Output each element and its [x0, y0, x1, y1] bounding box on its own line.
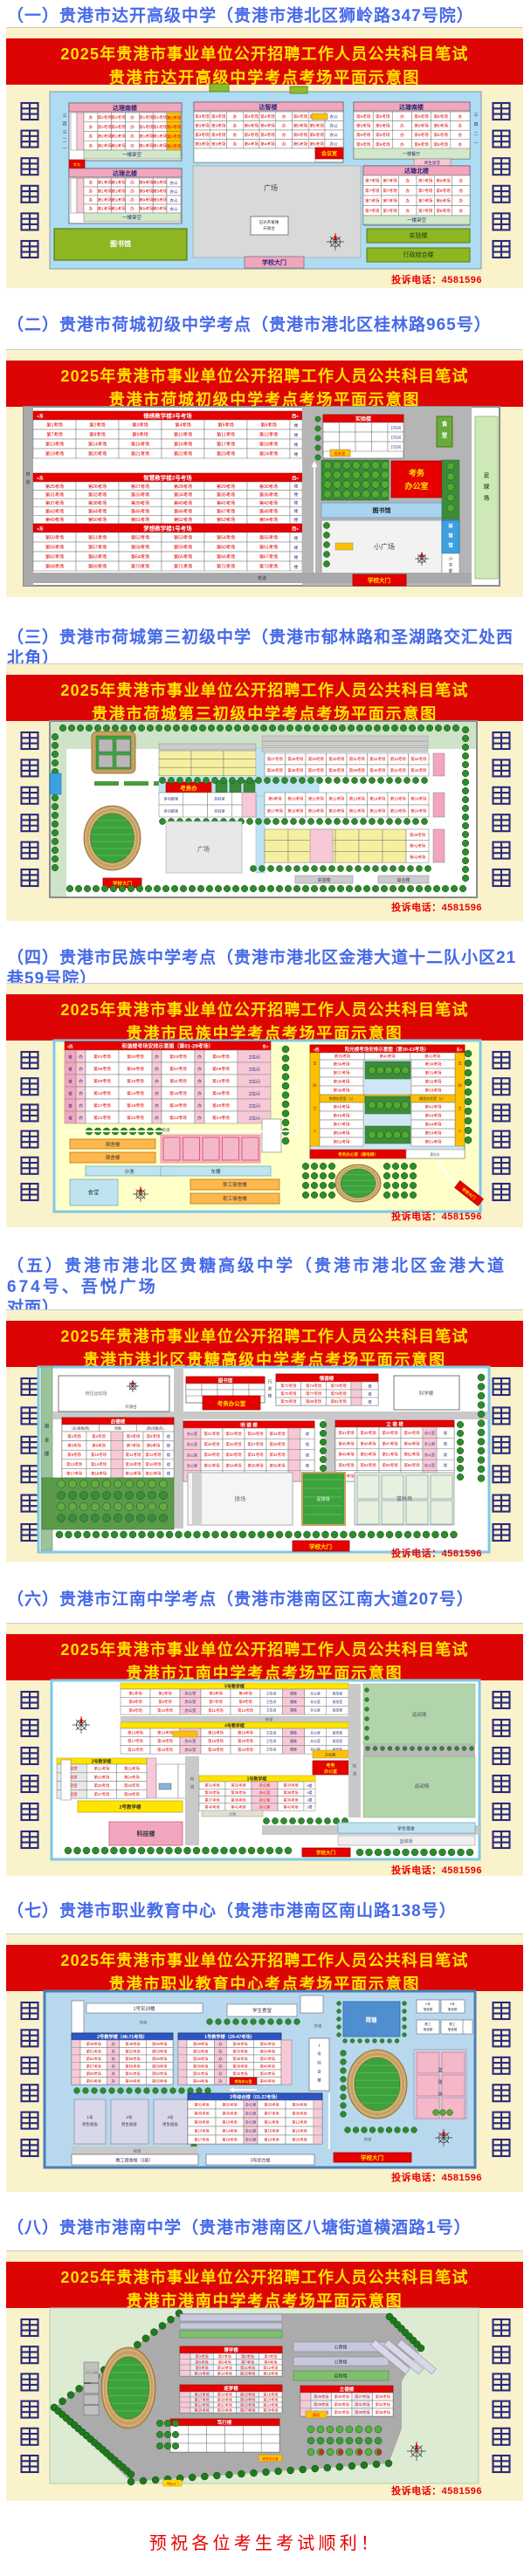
- svg-text:第7考场: 第7考场: [383, 177, 397, 183]
- svg-text:办公: 办公: [329, 141, 338, 148]
- svg-text:校道: 校道: [140, 2019, 148, 2025]
- svg-text:第5考场: 第5考场: [376, 132, 390, 138]
- svg-text:第13考场: 第13考场: [128, 1729, 143, 1735]
- svg-text:第50考场: 第50考场: [45, 533, 64, 540]
- svg-text:第36考场: 第36考场: [283, 1789, 298, 1796]
- svg-text:第1考场: 第1考场: [153, 114, 168, 120]
- svg-text:3号综合楼: 3号综合楼: [251, 2157, 271, 2163]
- svg-text:第5考场: 第5考场: [153, 206, 168, 212]
- svg-text:第4考场: 第4考场: [260, 141, 275, 147]
- svg-text:第06考场: 第06考场: [127, 1066, 144, 1072]
- svg-text:办公: 办公: [329, 123, 338, 129]
- svg-text:第19考场: 第19考场: [208, 1738, 224, 1744]
- svg-text:第15考场: 第15考场: [131, 440, 149, 447]
- svg-text:办: 办: [233, 141, 238, 147]
- svg-text:第54考场: 第54考场: [360, 1462, 376, 1468]
- svg-text:第1考场: 第1考场: [128, 1690, 142, 1696]
- svg-text:第28考场: 第28考场: [376, 2394, 390, 2400]
- svg-text:第28考场: 第28考场: [269, 1441, 286, 1447]
- svg-text:第1考场: 第1考场: [153, 124, 168, 130]
- svg-text:办: 办: [130, 180, 134, 186]
- svg-text:第51考场: 第51考场: [131, 516, 149, 523]
- svg-text:第40考场: 第40考场: [410, 832, 426, 838]
- svg-text:第6考场: 第6考场: [434, 123, 449, 129]
- svg-text:第43考场: 第43考场: [45, 508, 64, 515]
- svg-text:办公室: 办公室: [424, 1462, 435, 1467]
- svg-text:办: 办: [89, 206, 93, 212]
- svg-text:第21考场: 第21考场: [195, 2402, 210, 2408]
- svg-text:宿: 宿: [45, 1423, 50, 1430]
- svg-text:阅览室: 阅览室: [333, 1708, 343, 1713]
- svg-text:考务: 考务: [409, 468, 425, 477]
- svg-text:办公室: 办公室: [310, 1700, 321, 1704]
- svg-text:第4考场: 第4考场: [244, 132, 259, 138]
- svg-text:实验楼: 实验楼: [355, 416, 371, 422]
- svg-text:办公室: 办公室: [187, 1452, 197, 1457]
- svg-text:一楼餐厅: 一楼餐厅: [403, 151, 420, 157]
- svg-text:篮球场: 篮球场: [399, 1838, 412, 1844]
- svg-text:楼: 楼: [294, 451, 299, 457]
- svg-text:学校大门: 学校大门: [166, 2481, 179, 2485]
- svg-text:办: 办: [197, 1090, 202, 1096]
- svg-text:第10考场: 第10考场: [91, 1452, 107, 1458]
- svg-text:第9考场: 第9考场: [268, 796, 282, 802]
- svg-text:第36考场: 第36考场: [259, 491, 278, 498]
- svg-text:(东)南面(西): (东)南面(西): [72, 1425, 90, 1430]
- svg-text:办公室: 办公室: [187, 1463, 197, 1468]
- svg-text:第40考场: 第40考场: [369, 767, 386, 773]
- svg-text:第20考场: 第20考场: [145, 1470, 162, 1476]
- svg-text:第14考场: 第14考场: [127, 1090, 144, 1096]
- svg-text:办公室: 办公室: [424, 1430, 435, 1435]
- svg-text:办公: 办公: [169, 206, 178, 212]
- svg-text:办: 办: [112, 2041, 115, 2047]
- svg-text:男生宿舍: 男生宿舍: [82, 2121, 98, 2127]
- svg-text:球: 球: [438, 2079, 442, 2085]
- svg-text:第3考场: 第3考场: [195, 141, 210, 147]
- svg-text:楼: 楼: [167, 1470, 170, 1476]
- svg-text:第35考场: 第35考场: [334, 1054, 351, 1060]
- svg-text:三: 三: [473, 113, 478, 118]
- svg-text:第33考场: 第33考场: [425, 1088, 442, 1094]
- svg-text:第5考场: 第5考场: [153, 197, 168, 203]
- svg-text:第3考场: 第3考场: [195, 113, 210, 120]
- svg-text:卫生间: 卫生间: [266, 1700, 277, 1704]
- svg-text:第3考场: 第3考场: [211, 113, 226, 120]
- svg-text:第5考场: 第5考场: [293, 113, 308, 120]
- svg-text:第10考场: 第10考场: [217, 2365, 232, 2371]
- svg-text:第54考场: 第54考场: [86, 2056, 101, 2062]
- svg-text:第2考场: 第2考场: [98, 124, 113, 130]
- svg-text:第17考场: 第17考场: [267, 808, 284, 814]
- svg-text:舍: 舍: [45, 1437, 50, 1444]
- svg-text:第2考场: 第2考场: [111, 114, 126, 120]
- svg-text:第70考场: 第70考场: [131, 562, 149, 569]
- svg-text:第35考场: 第35考场: [193, 2056, 208, 2062]
- svg-text:图书馆: 图书馆: [218, 1377, 233, 1384]
- svg-text:卫生间: 卫生间: [248, 1067, 259, 1073]
- svg-text:第21考场: 第21考场: [349, 808, 366, 814]
- svg-text:学校大门: 学校大门: [361, 2154, 384, 2161]
- svg-text:第7考场: 第7考场: [365, 208, 380, 214]
- svg-text:第18考场: 第18考场: [259, 440, 278, 447]
- svg-text:卫生间: 卫生间: [266, 1730, 277, 1735]
- svg-text:第38考场: 第38考场: [231, 1796, 245, 1803]
- svg-text:办: 办: [233, 122, 238, 128]
- svg-text:第02考场: 第02考场: [127, 1054, 144, 1060]
- svg-text:第22考场: 第22考场: [225, 1431, 242, 1437]
- svg-text:运动场: 运动场: [415, 1783, 430, 1789]
- svg-text:行: 行: [268, 1379, 272, 1385]
- svg-text:办: 办: [197, 1066, 202, 1072]
- svg-text:第13考场: 第13考场: [93, 1090, 111, 1096]
- svg-text:小: 小: [449, 556, 453, 562]
- svg-text:第38考场: 第38考场: [193, 2063, 208, 2069]
- svg-text:第13考场: 第13考场: [195, 2392, 210, 2398]
- svg-text:第4考场: 第4考场: [175, 421, 190, 428]
- svg-text:第04考场: 第04考场: [292, 2102, 307, 2108]
- svg-text:多功能室: 多功能室: [163, 796, 178, 802]
- svg-text:第53考场: 第53考场: [425, 1130, 442, 1137]
- svg-text:馆: 馆: [448, 542, 453, 549]
- svg-text:第33考场: 第33考场: [131, 491, 149, 498]
- svg-text:第22考场: 第22考场: [217, 2402, 232, 2408]
- svg-text:第4考场: 第4考场: [260, 113, 275, 120]
- svg-text:第3考场: 第3考场: [209, 1690, 223, 1696]
- svg-text:第14考场: 第14考场: [91, 1461, 107, 1467]
- svg-text:一: 一: [62, 147, 66, 152]
- svg-text:阳光楼考场安排示意图（第30-53考场）: 阳光楼考场安排示意图（第30-53考场）: [345, 1046, 430, 1053]
- svg-text:第23考场: 第23考场: [208, 1747, 224, 1753]
- svg-text:第10考场: 第10考场: [287, 796, 304, 802]
- svg-text:3楼: 3楼: [307, 1797, 313, 1802]
- svg-text:第42考场: 第42考场: [410, 854, 426, 860]
- svg-text:第1考场: 第1考场: [111, 206, 126, 212]
- svg-text:办: 办: [400, 123, 404, 129]
- svg-text:办: 办: [218, 2056, 222, 2062]
- svg-text:第47考场: 第47考场: [334, 1122, 350, 1128]
- svg-text:校道: 校道: [258, 575, 266, 581]
- svg-text:第54考场: 第54考场: [217, 533, 235, 540]
- svg-text:第6考场: 第6考场: [414, 141, 429, 148]
- svg-text:第7考场: 第7考场: [365, 177, 380, 183]
- svg-text:楼: 楼: [294, 545, 299, 551]
- svg-text:第42考场: 第42考场: [425, 1104, 442, 1110]
- svg-text:楼: 楼: [68, 1103, 72, 1109]
- svg-text:办公室: 办公室: [245, 2119, 257, 2126]
- svg-text:第1考场: 第1考场: [153, 134, 168, 140]
- svg-text:沙池: 沙池: [124, 1168, 134, 1175]
- svg-text:道: 道: [190, 1784, 195, 1790]
- svg-text:第36考场: 第36考场: [376, 2409, 390, 2415]
- svg-text:第43考场: 第43考场: [425, 1113, 442, 1119]
- svg-text:办: 办: [155, 1078, 159, 1084]
- svg-text:2号教学楼: 2号教学楼: [119, 1803, 141, 1810]
- svg-text:启德楼: 启德楼: [111, 1418, 126, 1425]
- svg-text:情境实验室（2）: 情境实验室（2）: [419, 1096, 445, 1101]
- svg-text:第1考场: 第1考场: [67, 1433, 81, 1439]
- svg-text:办公室: 办公室: [310, 1691, 321, 1695]
- svg-text:第22考场: 第22考场: [127, 1115, 144, 1121]
- svg-text:公寓楼: 公寓楼: [334, 2345, 347, 2351]
- svg-text:第53考场: 第53考场: [152, 2048, 167, 2054]
- svg-text:逐梦楼: 逐梦楼: [224, 2385, 238, 2392]
- svg-text:达瑭南楼: 达瑭南楼: [399, 103, 424, 111]
- svg-text:办: 办: [233, 132, 238, 138]
- svg-text:第43考场: 第43考场: [382, 1430, 398, 1436]
- svg-text:实验楼: 实验楼: [317, 877, 330, 883]
- svg-text:第49考场: 第49考场: [45, 516, 64, 523]
- svg-text:第28考场: 第28考场: [174, 483, 192, 490]
- svg-text:办公室: 办公室: [185, 1690, 197, 1696]
- svg-text:第20考场: 第20考场: [88, 450, 107, 457]
- svg-text:第5考场: 第5考场: [356, 132, 371, 138]
- svg-text:第24考场: 第24考场: [238, 1747, 253, 1753]
- svg-text:第19考场: 第19考场: [169, 1103, 187, 1109]
- svg-text:办公室: 办公室: [245, 2137, 257, 2143]
- svg-text:第10考场: 第10考场: [127, 1078, 144, 1084]
- svg-text:第6考场: 第6考场: [434, 141, 449, 148]
- svg-text:第9考场: 第9考场: [139, 206, 154, 212]
- svg-text:一楼架空: 一楼架空: [122, 214, 142, 221]
- svg-text:第2考场: 第2考场: [111, 124, 126, 130]
- svg-text:第30考场: 第30考场: [328, 756, 345, 762]
- svg-text:第49考场: 第49考场: [338, 1452, 355, 1458]
- svg-text:楼: 楼: [268, 1393, 272, 1399]
- svg-text:卫生间: 卫生间: [248, 1103, 259, 1109]
- svg-text:第15考场: 第15考场: [169, 1090, 187, 1096]
- svg-text:田径运动场: 田径运动场: [85, 1391, 107, 1397]
- svg-text:第7考场: 第7考场: [209, 1699, 223, 1705]
- svg-text:办: 办: [218, 2063, 222, 2069]
- svg-text:第17考场: 第17考场: [128, 1738, 143, 1744]
- svg-text:第16考场: 第16考场: [292, 2128, 307, 2134]
- svg-text:第37考场: 第37考场: [204, 1796, 219, 1803]
- svg-text:第2考场: 第2考场: [111, 142, 126, 148]
- svg-text:第25考场: 第25考场: [94, 1783, 110, 1789]
- svg-text:第11考场: 第11考场: [126, 1452, 141, 1458]
- svg-text:第38考场: 第38考场: [88, 499, 107, 506]
- svg-text:办: 办: [79, 1090, 83, 1096]
- svg-text:第23考场: 第23考场: [247, 1431, 264, 1437]
- svg-text:第56考场: 第56考场: [152, 2056, 167, 2062]
- svg-text:第41考场: 第41考场: [390, 767, 407, 773]
- svg-text:五: 五: [458, 1061, 461, 1065]
- svg-text:第43考场: 第43考场: [260, 2071, 275, 2077]
- svg-text:第11考场: 第11考场: [308, 796, 324, 802]
- svg-text:第27考场: 第27考场: [131, 483, 149, 490]
- svg-text:第12考场: 第12考场: [263, 2365, 278, 2371]
- svg-text:第16考场: 第16考场: [410, 796, 427, 802]
- svg-text:第52考场: 第52考场: [125, 2048, 140, 2054]
- svg-text:宿舍楼: 宿舍楼: [424, 2007, 433, 2011]
- svg-text:第24考场: 第24考场: [263, 2402, 278, 2408]
- svg-text:第12考场: 第12考场: [212, 1078, 230, 1084]
- svg-text:第5考场: 第5考场: [293, 122, 308, 128]
- svg-text:第08考场: 第08考场: [292, 2111, 307, 2117]
- svg-text:广场: 广场: [264, 183, 278, 192]
- svg-text:校: 校: [353, 1763, 357, 1769]
- svg-text:第32考场: 第32考场: [88, 491, 107, 498]
- svg-text:楼: 楼: [68, 1079, 72, 1085]
- svg-text:第53考场: 第53考场: [338, 1462, 355, 1468]
- svg-text:学校大门: 学校大门: [368, 576, 391, 584]
- svg-text:办公: 办公: [329, 113, 338, 120]
- svg-text:第37考场: 第37考场: [260, 2056, 275, 2062]
- svg-text:楼梯: 楼梯: [290, 1708, 297, 1713]
- svg-text:第56考场: 第56考场: [403, 1462, 420, 1468]
- svg-text:第5考场: 第5考场: [376, 141, 390, 148]
- svg-text:篮球场: 篮球场: [397, 1495, 412, 1502]
- svg-text:第46考场: 第46考场: [174, 508, 192, 515]
- svg-text:第4考场: 第4考场: [260, 122, 275, 128]
- svg-text:第39考场: 第39考场: [131, 499, 149, 506]
- svg-text:楼: 楼: [294, 422, 299, 429]
- svg-text:楼梯: 楼梯: [290, 1739, 297, 1743]
- svg-text:第28考场: 第28考场: [263, 2408, 278, 2414]
- svg-text:办公室: 办公室: [245, 2111, 257, 2117]
- svg-text:第5考场: 第5考场: [293, 132, 308, 138]
- svg-text:2号教学楼（48-71考场）: 2号教学楼（48-71考场）: [97, 2033, 148, 2040]
- svg-text:办公室: 办公室: [185, 1738, 197, 1744]
- svg-text:第9考场: 第9考场: [128, 1707, 142, 1714]
- svg-text:第29考场: 第29考场: [314, 2401, 328, 2408]
- svg-text:2号: 2号: [425, 2002, 431, 2006]
- svg-text:梦想教学楼1号考场: 梦想教学楼1号考场: [143, 525, 192, 532]
- svg-text:第32考场: 第32考场: [231, 1783, 245, 1789]
- svg-text:第1考场: 第1考场: [139, 114, 154, 120]
- svg-text:楼: 楼: [167, 1461, 170, 1467]
- svg-text:石达开蒙难: 石达开蒙难: [259, 219, 279, 225]
- svg-text:科学楼: 科学楼: [419, 1390, 434, 1397]
- svg-text:第28考场: 第28考场: [124, 1791, 140, 1797]
- svg-text:西»: 西»: [292, 526, 299, 532]
- svg-text:第44考场: 第44考场: [88, 508, 107, 515]
- svg-text:第73考场: 第73考场: [280, 1383, 297, 1389]
- svg-text:办公: 办公: [169, 197, 178, 203]
- svg-text:第41考场: 第41考场: [193, 2071, 208, 2077]
- svg-text:第3考场: 第3考场: [211, 132, 226, 138]
- svg-text:第19考场: 第19考场: [240, 2397, 255, 2403]
- svg-text:第6考场: 第6考场: [414, 132, 429, 138]
- svg-text:办: 办: [459, 113, 463, 120]
- svg-text:第2考场: 第2考场: [111, 134, 126, 140]
- svg-text:第73考场: 第73考场: [259, 562, 278, 569]
- svg-text:第6考场: 第6考场: [434, 113, 449, 120]
- svg-text:楼: 楼: [167, 1452, 170, 1458]
- svg-text:办公室: 办公室: [185, 1707, 197, 1714]
- svg-text:第35考场: 第35考场: [247, 1462, 264, 1468]
- svg-text:第65考场: 第65考场: [152, 2078, 167, 2084]
- svg-text:第7考场: 第7考场: [365, 197, 380, 203]
- svg-text:第37考场: 第37考场: [308, 767, 325, 773]
- svg-text:办: 办: [406, 177, 410, 183]
- svg-text:第59考场: 第59考场: [152, 2063, 167, 2069]
- svg-text:第60考场: 第60考场: [217, 543, 235, 550]
- svg-text:第50考场: 第50考场: [88, 516, 107, 523]
- svg-text:宿舍楼: 宿舍楼: [106, 1141, 121, 1148]
- svg-text:图书馆: 图书馆: [110, 239, 131, 248]
- svg-text:第18考场: 第18考场: [287, 808, 304, 814]
- svg-text:第62考场: 第62考场: [45, 553, 64, 560]
- svg-text:第05考场: 第05考场: [194, 2111, 209, 2117]
- svg-text:楼: 楼: [68, 1116, 72, 1122]
- svg-text:第1考场: 第1考场: [98, 206, 113, 212]
- svg-text:第17考场: 第17考场: [194, 2137, 209, 2143]
- svg-text:办: 办: [112, 2071, 115, 2077]
- svg-text:办公室: 办公室: [259, 1804, 271, 1810]
- svg-text:楼: 楼: [368, 1383, 371, 1389]
- svg-text:第07考场: 第07考场: [264, 2111, 279, 2117]
- svg-text:第27考场: 第27考场: [240, 2408, 255, 2414]
- svg-text:第42考场: 第42考场: [283, 1804, 298, 1810]
- svg-text:第32考场: 第32考场: [193, 2048, 208, 2054]
- svg-text:第1考场: 第1考场: [111, 197, 126, 203]
- svg-text:第24考场: 第24考场: [259, 450, 278, 457]
- svg-text:第15考场: 第15考场: [390, 796, 407, 802]
- svg-text:办: 办: [130, 134, 134, 140]
- svg-text:办: 办: [400, 141, 404, 148]
- svg-text:楼: 楼: [294, 554, 299, 560]
- svg-text:第5考场: 第5考场: [309, 132, 324, 138]
- svg-text:宿舍楼: 宿舍楼: [424, 2027, 433, 2031]
- svg-text:第7考场: 第7考场: [418, 177, 433, 183]
- svg-text:阅览室: 阅览室: [333, 1691, 343, 1695]
- svg-text:«东: «东: [37, 414, 44, 420]
- svg-text:办: 办: [459, 197, 464, 203]
- svg-text:办: 办: [155, 1054, 159, 1060]
- svg-text:第31考场: 第31考场: [247, 1452, 264, 1458]
- svg-text:第61考场: 第61考场: [125, 2071, 140, 2077]
- svg-text:第20考场: 第20考场: [212, 1103, 230, 1109]
- svg-text:第26考场: 第26考场: [124, 1783, 140, 1789]
- svg-text:第47考场: 第47考场: [217, 508, 235, 515]
- svg-text:第80考场: 第80考场: [306, 1398, 322, 1405]
- svg-text:办: 办: [400, 113, 404, 120]
- svg-text:第32考场: 第32考场: [269, 1452, 286, 1458]
- svg-text:第36考场: 第36考场: [287, 767, 304, 773]
- svg-text:第30考场: 第30考场: [334, 2401, 349, 2408]
- svg-text:第09考场: 第09考场: [194, 2119, 209, 2126]
- svg-text:第55考场: 第55考场: [125, 2056, 140, 2062]
- svg-text:第06考场: 第06考场: [222, 2111, 237, 2117]
- svg-text:一: 一: [473, 141, 478, 147]
- svg-text:第31考场: 第31考场: [425, 1070, 442, 1076]
- svg-text:第78考场: 第78考场: [331, 1391, 348, 1397]
- svg-text:第1考场: 第1考场: [111, 180, 126, 186]
- svg-text:第31考场: 第31考场: [260, 2041, 275, 2047]
- svg-text:第36考场: 第36考场: [269, 1462, 286, 1468]
- svg-text:第02考场: 第02考场: [222, 2102, 237, 2108]
- svg-text:第34考场: 第34考场: [334, 2409, 349, 2415]
- svg-text:第5考场: 第5考场: [153, 180, 168, 186]
- svg-text:第68考场: 第68考场: [45, 562, 64, 569]
- svg-text:第72考场: 第72考场: [217, 562, 235, 569]
- svg-text:第3考场: 第3考场: [211, 122, 226, 128]
- svg-text:西»: 西»: [292, 476, 299, 482]
- svg-text:第4考场: 第4考场: [260, 132, 275, 138]
- svg-text:教工: 教工: [449, 2022, 456, 2026]
- svg-text:第3考场: 第3考场: [195, 122, 210, 128]
- svg-text:第60考场: 第60考场: [86, 2071, 101, 2077]
- svg-text:第08考场: 第08考场: [212, 1066, 230, 1072]
- svg-text:第16考场: 第16考场: [238, 1729, 253, 1735]
- svg-text:办公室: 办公室: [424, 1440, 435, 1446]
- svg-text:第1考场: 第1考场: [98, 197, 113, 203]
- svg-text:立德楼: 立德楼: [340, 2386, 355, 2393]
- svg-text:第6考场: 第6考场: [414, 123, 429, 129]
- svg-text:办公室: 办公室: [324, 1769, 337, 1775]
